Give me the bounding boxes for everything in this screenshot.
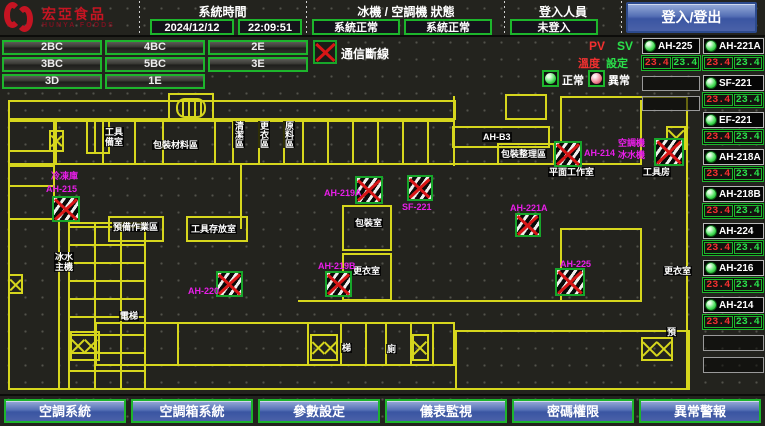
brand-name-en: HUNYA FOODS	[42, 22, 115, 29]
ahu-map-label: AH-219A	[324, 188, 362, 198]
wall-divider	[352, 122, 354, 163]
pv-value: 23.4	[704, 279, 733, 291]
pv-value: 23.4	[704, 168, 733, 180]
unit-name-label: AH-225	[658, 41, 692, 52]
stair-x-symbol	[310, 334, 338, 361]
legend-normal-led	[542, 70, 559, 87]
room-label: 平面工作室	[548, 167, 595, 177]
sv-value: 23.4	[734, 168, 763, 180]
wall-segment	[240, 165, 242, 229]
unit-values-ah-218b: 23.423.4	[702, 203, 764, 219]
stair-x-symbol	[49, 130, 64, 152]
empty-slot	[642, 76, 700, 91]
pv-value: 23.4	[704, 94, 733, 106]
sv-value: 23.4	[672, 57, 700, 69]
pv-value: 23.4	[704, 316, 733, 328]
zone-button-grid: 2BC4BC2E3BC5BC3E3D1E	[2, 40, 314, 92]
ahu-map-label: AH-215	[46, 184, 77, 194]
legend-abnormal-label: 異常	[608, 72, 630, 88]
pv-row-label: 溫度	[578, 55, 600, 71]
zone-button-3e[interactable]: 3E	[208, 57, 308, 72]
zone-button-2bc[interactable]: 2BC	[2, 40, 102, 55]
unit-name-label: AH-224	[719, 226, 753, 237]
header-divider	[306, 1, 307, 35]
wall-divider	[427, 122, 429, 163]
unit-ah-224[interactable]: AH-224	[703, 223, 764, 239]
comm-fail-x-icon	[409, 177, 431, 199]
brand-logo: 宏亞食品 HUNYA FOODS	[4, 2, 115, 33]
room-label: 預備作業區	[112, 222, 159, 232]
unit-values-ah-224: 23.423.4	[702, 240, 764, 256]
unit-values-ah-218a: 23.423.4	[702, 166, 764, 182]
x-cell-icon	[643, 339, 657, 359]
wall-segment	[686, 96, 688, 390]
room-label: 包裝室	[354, 218, 383, 228]
room-label: 更衣室	[663, 266, 692, 276]
unit-values-ah-225: 23.423.4	[641, 55, 701, 71]
wall-segment	[455, 300, 642, 302]
login-user-label: 登入人員	[506, 3, 620, 20]
nav-ahu-system[interactable]: 空調箱系統	[131, 399, 253, 423]
room-label: 更衣室	[352, 266, 381, 276]
comm-fail-x-icon	[327, 273, 350, 295]
unit-values-ef-221: 23.423.4	[702, 129, 764, 145]
pv-value: 23.4	[704, 131, 733, 143]
unit-sf-221[interactable]: SF-221	[703, 75, 764, 91]
wall-segment	[298, 300, 458, 302]
room-label: 空調機	[617, 138, 646, 148]
nav-password-permission[interactable]: 密碼權限	[512, 399, 634, 423]
comm-fail-x-icon	[557, 270, 583, 294]
pv-value: 23.4	[704, 57, 733, 69]
status-led-icon	[705, 40, 717, 52]
x-cell-icon	[10, 276, 21, 292]
sv-row-label: 設定	[606, 55, 628, 71]
x-cell-icon	[324, 336, 336, 359]
ahu-map-label: SF-221	[402, 202, 432, 212]
wall-divider	[302, 122, 304, 163]
comm-fail-x-icon	[54, 198, 78, 220]
system-time-value: 22:09:51	[238, 19, 302, 35]
comm-fail-x-icon	[517, 215, 539, 235]
room-label: 工具 備室	[104, 127, 124, 147]
sv-value: 23.4	[734, 205, 763, 217]
zone-button-2e[interactable]: 2E	[208, 40, 308, 55]
empty-slot	[642, 96, 700, 111]
header-divider	[621, 1, 622, 35]
pv-value: 23.4	[643, 57, 671, 69]
wall-divider	[377, 122, 379, 163]
wall-segment	[8, 120, 55, 220]
room-label: 廁	[386, 344, 397, 354]
status-led-icon	[644, 40, 656, 52]
wall-segment	[8, 100, 10, 390]
wall-divider	[432, 324, 434, 364]
x-cell-icon	[72, 333, 85, 359]
unit-ef-221[interactable]: EF-221	[703, 112, 764, 128]
unit-ah-218b[interactable]: AH-218B	[703, 186, 764, 202]
unit-values-ah-221a: 23.423.4	[702, 55, 764, 71]
unit-ah-216[interactable]: AH-216	[703, 260, 764, 276]
ahu-fan-icon-ah-225[interactable]	[555, 268, 585, 296]
nav-alarm[interactable]: 異常警報	[639, 399, 761, 423]
room-label: 電梯	[119, 311, 139, 321]
unit-values-ah-214: 23.423.4	[702, 314, 764, 330]
machine-status-label: 冰機 / 空調機 狀態	[308, 3, 504, 20]
unit-ah-225[interactable]: AH-225	[642, 38, 700, 54]
stair-x-symbol	[641, 337, 673, 361]
comm-fail-x-icon	[656, 140, 682, 164]
legend-normal-label: 正常	[562, 72, 584, 88]
room-label: 更衣區	[258, 121, 270, 148]
brand-text: 宏亞食品 HUNYA FOODS	[42, 7, 115, 29]
room-label: AH-B3	[482, 132, 512, 142]
sv-value: 23.4	[734, 242, 763, 254]
ahu-fan-icon-ah-219b[interactable]	[325, 271, 352, 297]
sv-value: 23.4	[734, 131, 763, 143]
comm-fail-x-icon	[218, 273, 241, 295]
header-bar: 宏亞食品 HUNYA FOODS 系統時間 2024/12/12 22:09:5…	[0, 0, 765, 37]
zone-button-4bc[interactable]: 4BC	[105, 40, 205, 55]
ahu-fan-icon[interactable]	[654, 138, 684, 166]
wall-divider	[365, 324, 367, 364]
ahu-map-label: AH-220	[188, 286, 219, 296]
unit-ah-218a[interactable]: AH-218A	[703, 149, 764, 165]
wall-divider	[327, 122, 329, 163]
wall-segment	[8, 218, 60, 390]
ahu-fan-icon-ah-220[interactable]	[216, 271, 243, 297]
status-led-icon	[705, 225, 717, 237]
ahu-status-value: 系統正常	[404, 19, 492, 35]
room-label: 工具房	[642, 167, 671, 177]
brand-name: 宏亞食品	[42, 7, 115, 22]
unit-name-label: AH-218B	[719, 189, 761, 200]
comm-fail-x-icon	[556, 143, 580, 165]
nav-meter-monitoring[interactable]: 儀表監視	[385, 399, 507, 423]
unit-name-label: AH-214	[719, 300, 753, 311]
wall-segment	[8, 100, 456, 120]
wall-segment	[8, 388, 690, 390]
unit-values-sf-221: 23.423.4	[702, 92, 764, 108]
zone-button-1e[interactable]: 1E	[105, 74, 205, 89]
status-led-icon	[705, 188, 717, 200]
header-divider	[504, 1, 505, 35]
empty-slot	[703, 335, 764, 351]
room-label: 包裝整理區	[500, 149, 547, 159]
unit-name-label: AH-218A	[719, 152, 761, 163]
room-label: 包裝材料區	[152, 140, 199, 150]
zone-button-5bc[interactable]: 5BC	[105, 57, 205, 72]
ahu-map-label: AH-225	[560, 259, 591, 269]
green-led-icon	[545, 73, 556, 84]
x-cell-icon	[414, 336, 427, 359]
sv-value: 23.4	[734, 57, 763, 69]
nav-hvac-system[interactable]: 空調系統	[4, 399, 126, 423]
room-label: 冷凍庫	[50, 171, 79, 181]
unit-ah-221a[interactable]: AH-221A	[703, 38, 764, 54]
status-led-icon	[705, 151, 717, 163]
x-cell-icon	[657, 339, 671, 359]
comm-fail-icon	[313, 40, 337, 64]
ahu-map-label: AH-214	[584, 148, 615, 158]
ahu-fan-icon-ah-215[interactable]	[52, 196, 80, 222]
room-label: 原料區	[283, 121, 295, 148]
wall-divider	[307, 324, 309, 364]
comm-fail-label: 通信斷線	[341, 45, 389, 62]
system-date-value: 2024/12/12	[150, 19, 234, 35]
wall-divider	[402, 122, 404, 163]
pv-header: PV	[589, 39, 605, 53]
ahu-fan-icon-ah-214[interactable]	[554, 141, 582, 167]
status-led-icon	[705, 262, 717, 274]
sv-header: SV	[617, 39, 633, 53]
unit-ah-214[interactable]: AH-214	[703, 297, 764, 313]
legend-abnormal-led	[588, 70, 605, 87]
wall-divider	[10, 150, 53, 152]
status-led-icon	[705, 299, 717, 311]
nav-parameter-settings[interactable]: 參數設定	[258, 399, 380, 423]
sv-value: 23.4	[734, 279, 763, 291]
wall-segment	[453, 96, 455, 166]
room-label: 清潔區	[233, 121, 245, 148]
wall-segment	[505, 94, 547, 120]
brand-logo-icon	[4, 2, 38, 33]
stair-x-symbol	[70, 331, 100, 361]
sv-value: 23.4	[734, 316, 763, 328]
red-x-icon	[315, 42, 335, 62]
wall-segment	[95, 322, 455, 366]
wall-divider	[10, 165, 53, 167]
zone-button-3bc[interactable]: 3BC	[2, 57, 102, 72]
unit-name-label: EF-221	[719, 115, 752, 126]
ahu-map-label: AH-221A	[510, 203, 548, 213]
wall-divider	[214, 122, 216, 163]
wall-divider	[177, 324, 179, 364]
login-user-value: 未登入	[510, 19, 598, 35]
equipment-icon	[176, 98, 206, 118]
pv-value: 23.4	[704, 242, 733, 254]
sv-value: 23.4	[734, 94, 763, 106]
hmi-screen: { "header": { "brand": {"name": "宏亞食品", …	[0, 0, 765, 426]
unit-values-ah-216: 23.423.4	[702, 277, 764, 293]
room-label: 工具存放室	[190, 224, 237, 234]
unit-name-label: SF-221	[719, 78, 752, 89]
red-led-icon	[591, 73, 602, 84]
unit-name-label: AH-221A	[719, 41, 761, 52]
unit-name-label: AH-216	[719, 263, 753, 274]
ahu-fan-icon-ah-221a[interactable]	[515, 213, 541, 237]
login-logout-button[interactable]: 登入/登出	[626, 2, 757, 33]
x-cell-icon	[51, 132, 62, 150]
system-time-label: 系統時間	[140, 3, 305, 20]
pv-value: 23.4	[704, 205, 733, 217]
room-label: 冰水 主機	[54, 252, 74, 272]
stair-x-symbol	[412, 334, 429, 361]
wall-segment	[342, 205, 392, 251]
x-cell-icon	[85, 333, 98, 359]
zone-button-3d[interactable]: 3D	[2, 74, 102, 89]
wall-divider	[134, 122, 136, 163]
ahu-fan-icon-sf-221[interactable]	[407, 175, 433, 201]
ahu-map-label: AH-219B	[318, 261, 356, 271]
x-cell-icon	[312, 336, 324, 359]
stair-x-symbol	[8, 274, 23, 294]
room-label: 預	[666, 327, 677, 337]
footer-nav: 空調系統空調箱系統參數設定儀表監視密碼權限異常警報	[0, 394, 765, 426]
chiller-status-value: 系統正常	[312, 19, 400, 35]
status-led-icon	[705, 77, 717, 89]
room-label: 冰水機	[617, 150, 646, 160]
room-label: 梯	[341, 343, 352, 353]
empty-slot	[703, 357, 764, 373]
status-led-icon	[705, 114, 717, 126]
